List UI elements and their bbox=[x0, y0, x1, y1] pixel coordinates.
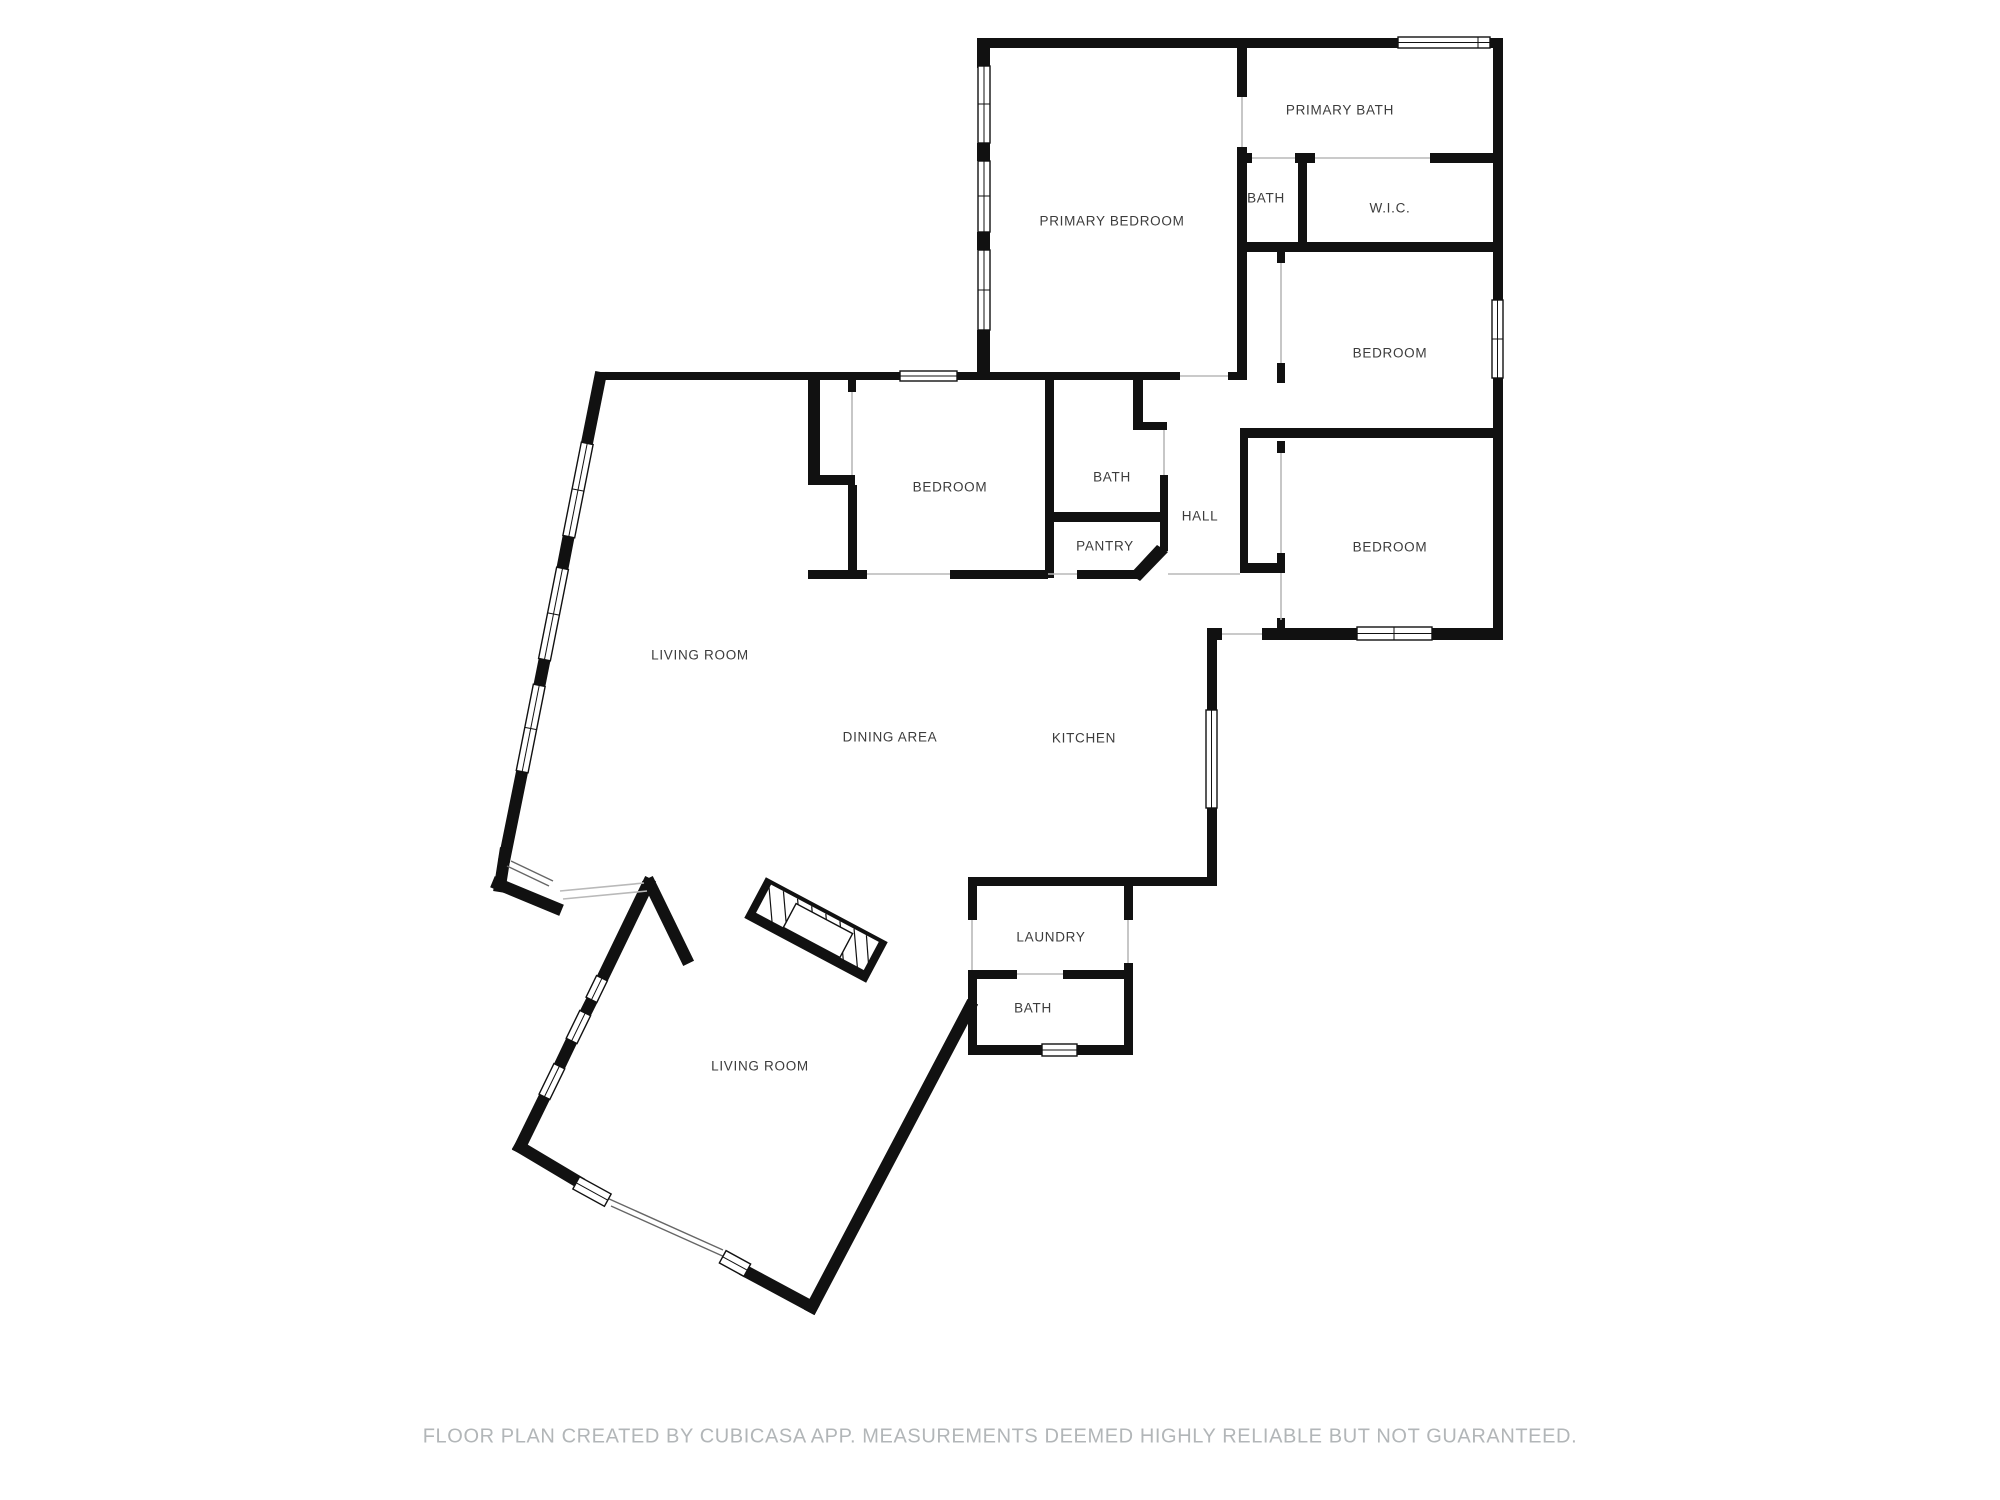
door-openings bbox=[507, 97, 1430, 1258]
floor-plan-page: PRIMARY BATH PRIMARY BEDROOM BATH W.I.C.… bbox=[0, 0, 2000, 1500]
diagonal-windows bbox=[516, 442, 750, 1276]
room-label-laundry: LAUNDRY bbox=[1016, 930, 1085, 945]
room-label-wic: W.I.C. bbox=[1370, 201, 1411, 216]
room-label-hall: HALL bbox=[1182, 509, 1219, 524]
room-label-bath-lower: BATH bbox=[1014, 1001, 1052, 1016]
floor-plan-drawing bbox=[0, 0, 2000, 1500]
room-label-primary-bedroom: PRIMARY BEDROOM bbox=[1039, 214, 1184, 229]
room-label-bedroom-mid: BEDROOM bbox=[913, 480, 988, 495]
room-label-primary-bath: PRIMARY BATH bbox=[1286, 103, 1394, 118]
room-label-dining-area: DINING AREA bbox=[843, 730, 938, 745]
fireplace bbox=[747, 880, 885, 980]
room-label-bath-mid: BATH bbox=[1093, 470, 1131, 485]
room-label-bedroom-se: BEDROOM bbox=[1353, 540, 1428, 555]
room-label-kitchen: KITCHEN bbox=[1052, 731, 1116, 746]
room-label-living-room-2: LIVING ROOM bbox=[711, 1059, 809, 1074]
footer-disclaimer: FLOOR PLAN CREATED BY CUBICASA APP. MEAS… bbox=[423, 1426, 1578, 1449]
room-label-living-room-1: LIVING ROOM bbox=[651, 648, 749, 663]
room-label-pantry: PANTRY bbox=[1076, 539, 1134, 554]
room-label-bath-upper: BATH bbox=[1247, 191, 1285, 206]
room-label-bedroom-ne: BEDROOM bbox=[1353, 346, 1428, 361]
